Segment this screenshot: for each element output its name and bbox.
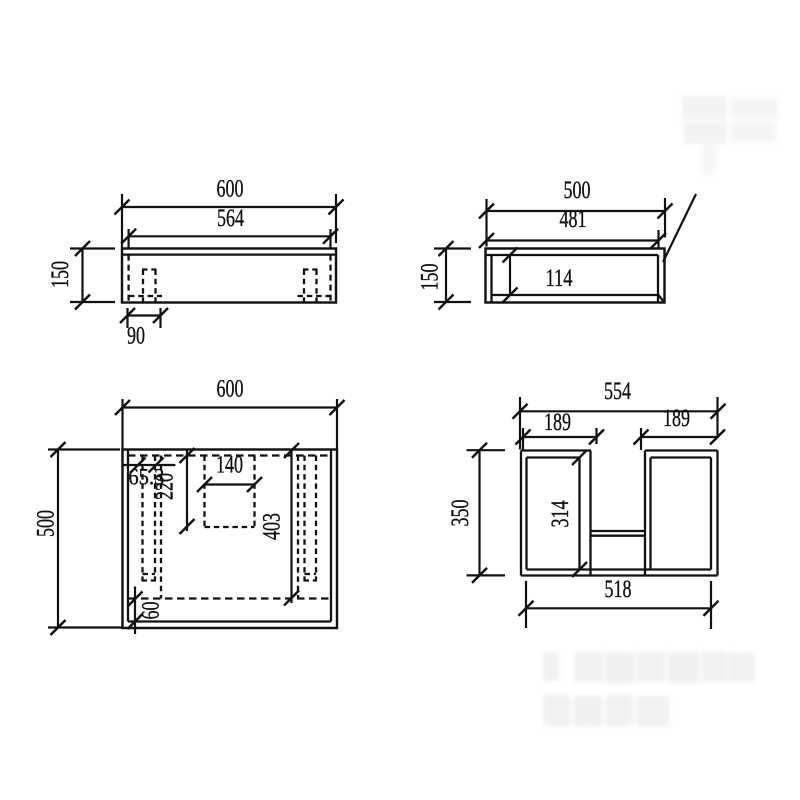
svg-text:518: 518 bbox=[605, 576, 632, 603]
svg-text:600: 600 bbox=[217, 176, 244, 203]
svg-text:65.3: 65.3 bbox=[128, 465, 164, 490]
svg-text:403: 403 bbox=[259, 513, 286, 540]
svg-text:150: 150 bbox=[417, 264, 444, 291]
svg-text:60: 60 bbox=[138, 602, 165, 620]
svg-text:600: 600 bbox=[217, 376, 244, 403]
svg-text:189: 189 bbox=[663, 405, 690, 432]
svg-text:350: 350 bbox=[447, 500, 474, 527]
svg-text:90: 90 bbox=[127, 323, 145, 350]
svg-text:500: 500 bbox=[33, 510, 60, 537]
svg-text:564: 564 bbox=[217, 205, 244, 232]
svg-text:140: 140 bbox=[216, 452, 243, 479]
svg-text:500: 500 bbox=[564, 177, 591, 204]
svg-text:314: 314 bbox=[547, 500, 574, 527]
svg-text:150: 150 bbox=[47, 261, 74, 288]
svg-text:481: 481 bbox=[560, 206, 587, 233]
svg-text:189: 189 bbox=[544, 409, 571, 436]
svg-text:114: 114 bbox=[546, 265, 573, 292]
svg-text:554: 554 bbox=[604, 378, 631, 405]
